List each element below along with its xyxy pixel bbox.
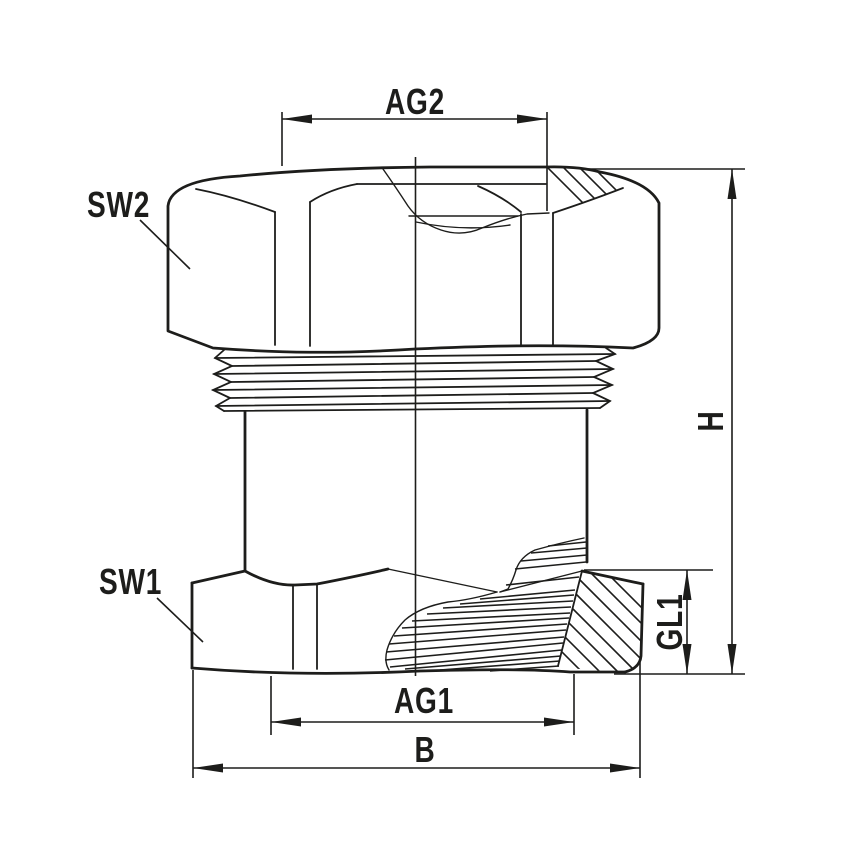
arrowhead-right (517, 115, 547, 124)
arrowhead-left (282, 115, 312, 124)
dimension-ag2: AG2 (282, 82, 547, 211)
thread-line (386, 637, 564, 652)
thread-line (548, 542, 586, 546)
leader-line (157, 598, 203, 642)
hatch-stroke (554, 158, 616, 220)
technical-drawing-canvas: AG2 H GL1 AG1 B SW2 (0, 0, 845, 845)
thread-flank-line (213, 385, 612, 390)
lower-nut-top-edge (245, 569, 388, 585)
thread-line (521, 555, 587, 561)
callout-sw2: SW2 (87, 185, 190, 269)
hatch-stroke (571, 589, 640, 658)
hatch-stroke (566, 602, 632, 668)
hatch-stroke (596, 156, 650, 210)
arrowhead-down (728, 644, 737, 674)
hatch-stroke (568, 156, 630, 218)
hatch-stroke (582, 156, 640, 214)
callout-sw1: SW1 (99, 562, 203, 642)
thread-flank-line (224, 408, 600, 411)
arrowhead-left (271, 718, 301, 727)
hatch-stroke (561, 615, 618, 672)
lower-cutaway-section (385, 538, 660, 674)
thread-line (515, 562, 586, 569)
dimension-label-ag1: AG1 (394, 681, 454, 721)
dimension-label-h: H (691, 410, 731, 431)
upper-nut-outline (168, 167, 659, 352)
hatch-stroke (557, 629, 602, 674)
revealed-thread-lower (385, 590, 575, 671)
hex-facet-arc-left-outer (196, 189, 275, 212)
thread-flank-line (216, 401, 610, 406)
dimension-ag1: AG1 (271, 674, 574, 735)
dimension-label-gl1: GL1 (650, 594, 690, 651)
arrowhead-right (610, 764, 640, 773)
arrowhead-up (728, 169, 737, 199)
thread-flank-line (214, 369, 613, 374)
thread-flank-line (230, 393, 593, 398)
thread-flank-line (231, 377, 594, 382)
thread-line (394, 624, 567, 636)
break-line-upper (388, 569, 497, 592)
hex-facet-arc-right-inner (478, 186, 521, 212)
hatch-stroke (554, 644, 584, 674)
thread-flank-line (232, 361, 596, 366)
lower-nut-top-left-slant (192, 571, 245, 583)
hatch-stroke (578, 578, 648, 648)
hex-facet-arc-left-inner (310, 184, 357, 202)
break-line-top (383, 169, 549, 233)
part-label-sw1: SW1 (99, 562, 162, 602)
external-thread (213, 348, 615, 411)
thread-line (506, 577, 579, 585)
drawing-page: AG2 H GL1 AG1 B SW2 (0, 0, 845, 845)
arrowhead-left (193, 764, 223, 773)
dimension-label-b: B (414, 730, 435, 770)
leader-line (140, 220, 190, 269)
thread-profile-right (593, 348, 615, 408)
upper-pressure-screw (168, 156, 659, 352)
arrowhead-right (544, 718, 574, 727)
part-label-sw2: SW2 (87, 185, 150, 225)
dimension-label-ag2: AG2 (385, 82, 445, 122)
thread-profile-left (213, 350, 232, 411)
